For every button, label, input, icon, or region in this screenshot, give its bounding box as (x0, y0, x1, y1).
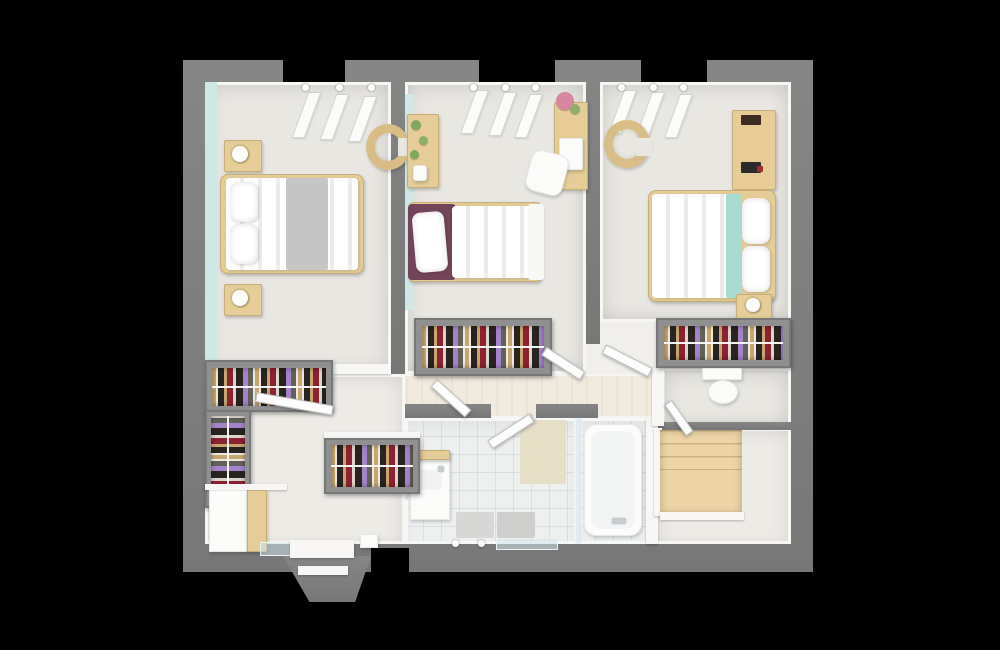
dormer-slab (283, 556, 371, 602)
wardrobe-clothes-rail (331, 445, 413, 487)
window-gap-bottom (371, 548, 409, 572)
flower-leaves (570, 104, 580, 114)
wall-bathroom-top-left (405, 404, 491, 418)
bathroom-window (496, 538, 558, 550)
marker-dot (680, 84, 687, 91)
bed-pillow (411, 211, 448, 274)
window-gap-top-2 (479, 60, 555, 82)
bed-teal-blanket (726, 194, 742, 298)
window-gap-top-1 (283, 60, 345, 82)
vase (413, 165, 427, 181)
dresser-item (741, 115, 761, 125)
toilet-bowl (708, 380, 738, 404)
bedroom-left-accent-wall (205, 82, 217, 374)
dormer-window-frame (298, 566, 348, 575)
wall-bedroom2-bedroom3 (586, 60, 600, 344)
bathroom-tile-panel (520, 420, 566, 484)
wall-wc-bottom (650, 422, 791, 430)
closet-clothes-rail (664, 326, 783, 360)
closet-clothes-rail (422, 326, 544, 368)
bed-pillow (742, 198, 770, 244)
marker-dot (650, 84, 657, 91)
dresser-item-red (757, 166, 763, 172)
toilet-tank (702, 368, 742, 380)
wall-vent (360, 534, 378, 548)
bed-pillow (230, 224, 258, 264)
dormer-floor (290, 540, 354, 558)
bed-pillow (230, 182, 258, 222)
staircase-winder (660, 430, 742, 514)
plant (411, 120, 421, 130)
stair-balustrade-bottom (660, 512, 744, 520)
bed-throw (528, 204, 544, 280)
armchair-opening (636, 138, 652, 156)
marker-dot (470, 84, 477, 91)
lamp (746, 298, 760, 312)
marker-dot (302, 84, 309, 91)
bath-mat (497, 512, 535, 538)
marker-dot (452, 540, 459, 547)
floor-plan-stage (0, 0, 1000, 650)
marker-dot (336, 84, 343, 91)
lamp (232, 290, 248, 306)
marker-dot (478, 540, 485, 547)
marker-dot (368, 84, 375, 91)
lamp (232, 146, 248, 162)
marker-dot (502, 84, 509, 91)
marker-dot (618, 84, 625, 91)
single-bed-duvet (452, 206, 532, 278)
bed-pillow (742, 246, 770, 292)
storage-cabinet (209, 490, 247, 552)
faucet (438, 466, 444, 472)
wall-wc-left-white (652, 368, 664, 426)
wall-bedroom1-bedroom2 (391, 60, 405, 374)
shower-glass-wall (575, 418, 582, 544)
marker-dot (532, 84, 539, 91)
tub-faucet (612, 518, 626, 524)
bed-gray-blanket (286, 178, 328, 270)
half-wall-bedroom1-bottom (333, 364, 391, 374)
wall-bathroom-top-right (536, 404, 598, 418)
plant (419, 136, 428, 145)
plant (410, 150, 419, 159)
window-gap-top-3 (641, 60, 707, 82)
bathtub-inner (591, 431, 635, 529)
bath-mat (456, 512, 494, 538)
